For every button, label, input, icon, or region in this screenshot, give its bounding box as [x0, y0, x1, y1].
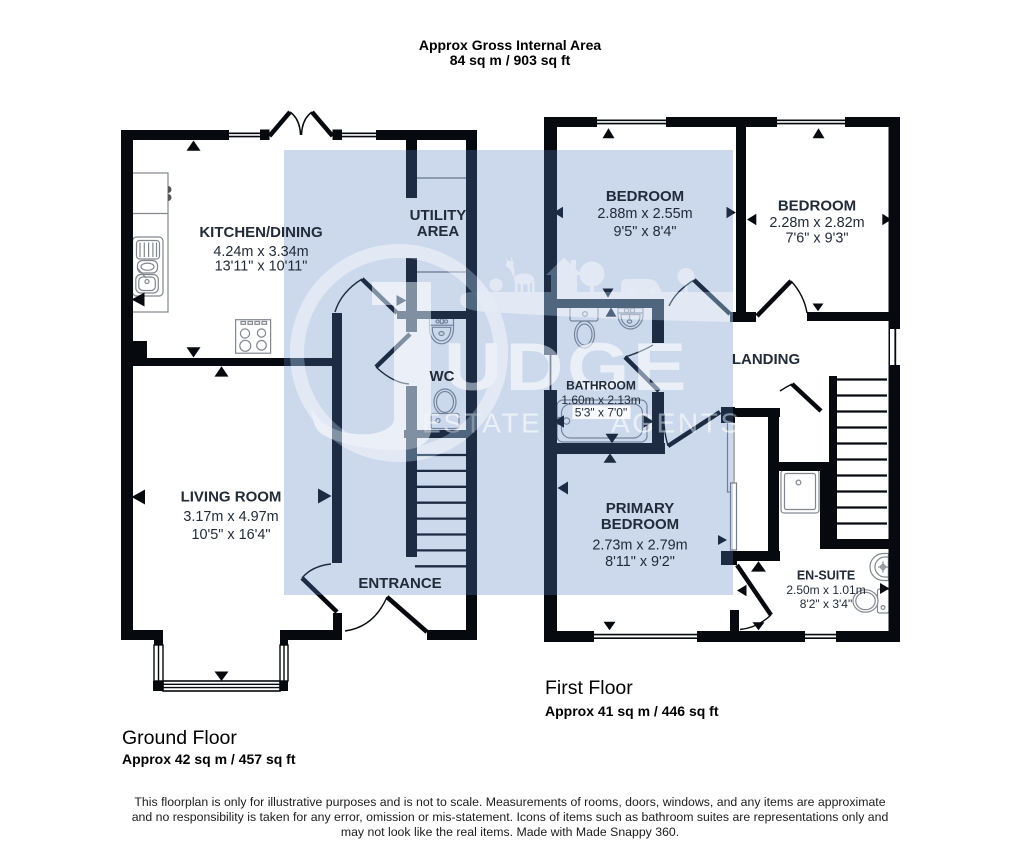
svg-text:ENTRANCE: ENTRANCE [358, 575, 441, 592]
svg-text:Approx 42 sq m / 457 sq ft: Approx 42 sq m / 457 sq ft [122, 751, 296, 767]
svg-text:BEDROOM: BEDROOM [601, 516, 679, 533]
svg-text:Approx 41 sq m / 446 sq ft: Approx 41 sq m / 446 sq ft [545, 703, 719, 719]
svg-text:BATHROOM: BATHROOM [566, 379, 636, 393]
svg-text:9'5" x 8'4": 9'5" x 8'4" [614, 224, 677, 240]
svg-text:8'2" x 3'4": 8'2" x 3'4" [800, 597, 852, 611]
svg-text:Approx Gross Internal Area: Approx Gross Internal Area [419, 37, 602, 53]
svg-text:AGENTS: AGENTS [611, 408, 742, 439]
svg-text:Ground Floor: Ground Floor [122, 727, 237, 749]
svg-text:WC: WC [430, 368, 455, 385]
svg-text:LANDING: LANDING [732, 351, 800, 368]
svg-text:3.17m x 4.97m: 3.17m x 4.97m [183, 509, 278, 525]
svg-text:2.88m x 2.55m: 2.88m x 2.55m [597, 206, 692, 222]
svg-text:2.28m x 2.82m: 2.28m x 2.82m [769, 215, 864, 231]
svg-text:EN-SUITE: EN-SUITE [797, 569, 855, 583]
svg-text:UTILITY: UTILITY [410, 207, 467, 224]
svg-text:2.50m x 1.01m: 2.50m x 1.01m [786, 583, 865, 597]
svg-text:PRIMARY: PRIMARY [606, 500, 675, 517]
svg-text:KITCHEN/DINING: KITCHEN/DINING [199, 224, 322, 241]
svg-text:First Floor: First Floor [545, 677, 633, 699]
svg-text:10'5" x 16'4": 10'5" x 16'4" [192, 527, 271, 543]
svg-text:This floorplan is only for ill: This floorplan is only for illustrative … [134, 795, 885, 809]
svg-text:13'11" x 10'11": 13'11" x 10'11" [215, 259, 308, 275]
svg-text:5'3" x 7'0": 5'3" x 7'0" [575, 406, 627, 420]
svg-text:84 sq m / 903 sq ft: 84 sq m / 903 sq ft [450, 52, 571, 68]
svg-text:AREA: AREA [417, 223, 460, 240]
svg-text:2.73m x 2.79m: 2.73m x 2.79m [592, 538, 687, 554]
svg-text:BEDROOM: BEDROOM [606, 188, 684, 205]
svg-text:and no responsibility is taken: and no responsibility is taken for any e… [132, 810, 889, 824]
svg-text:BEDROOM: BEDROOM [778, 198, 856, 215]
svg-text:7'6" x 9'3": 7'6" x 9'3" [786, 231, 849, 247]
svg-text:may not look like the real ite: may not look like the real items. Made w… [341, 825, 679, 839]
svg-text:8'11" x 9'2": 8'11" x 9'2" [605, 554, 675, 570]
svg-text:LIVING ROOM: LIVING ROOM [181, 489, 282, 506]
svg-text:ESTATE: ESTATE [422, 408, 542, 439]
